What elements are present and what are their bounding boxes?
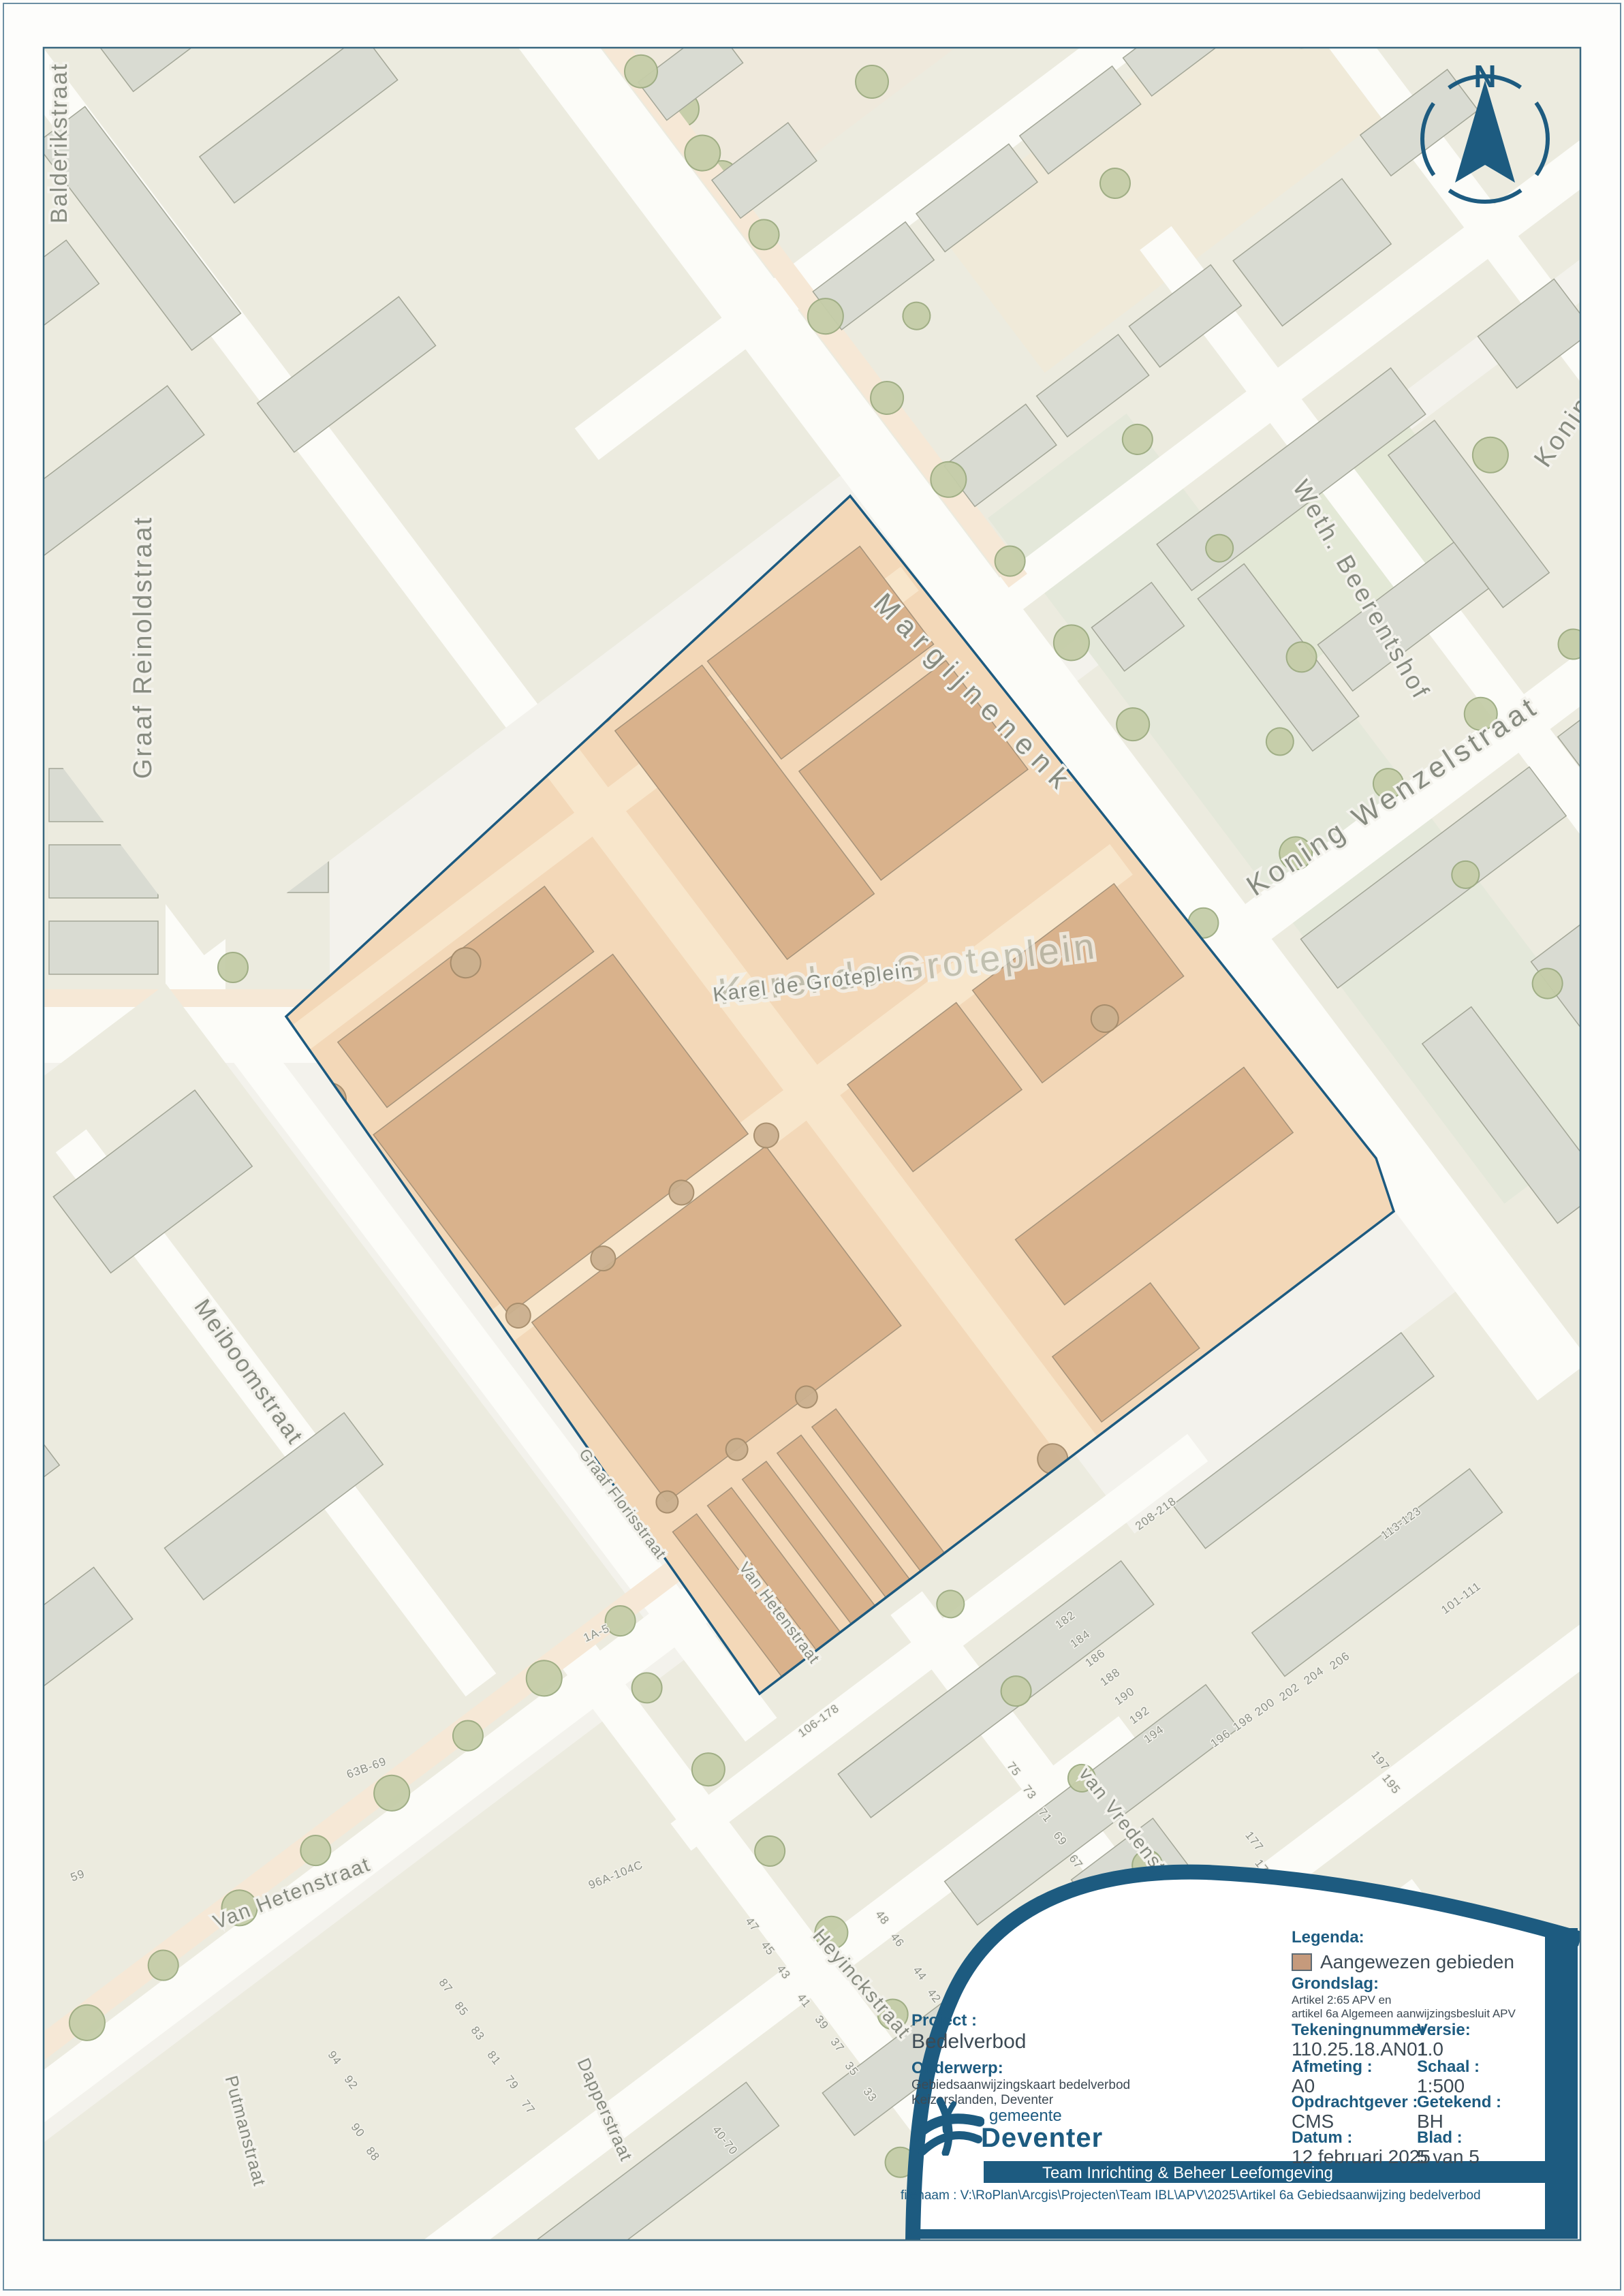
onderwerp-label: Onderwerp: bbox=[911, 2059, 1130, 2078]
info-r2-l2: Getekend : bbox=[1417, 2093, 1501, 2112]
legend-label: Aangewezen gebieden bbox=[1320, 1951, 1514, 1973]
project-block: Project : Bedelverbod bbox=[911, 2011, 1026, 2053]
project-value: Bedelverbod bbox=[911, 2030, 1026, 2053]
grondslag-line1: Artikel 2:65 APV en bbox=[1292, 1994, 1516, 2007]
info-r0-l2: Versie: bbox=[1417, 2021, 1471, 2040]
logo-line2: Deventer bbox=[981, 2123, 1103, 2154]
team-bar-label: Team Inrichting & Beheer Leefomgeving bbox=[1042, 2164, 1333, 2183]
project-label: Project : bbox=[911, 2011, 1026, 2030]
info-r1-l2: Schaal : bbox=[1417, 2058, 1480, 2077]
info-r3-l2: Blad : bbox=[1417, 2128, 1463, 2147]
info-r1-l1: Afmeting : bbox=[1292, 2058, 1373, 2077]
grondslag-line2: artikel 6a Algemeen aanwijzingsbesluit A… bbox=[1292, 2007, 1516, 2021]
legend: Legenda: Aangewezen gebieden bbox=[1292, 1928, 1514, 1973]
info-r3-v2: 5 van 5 bbox=[1417, 2146, 1480, 2168]
info-r0-l1: Tekeningnummer : bbox=[1292, 2021, 1437, 2040]
filename-line: filenaam : V:\RoPlan\Arcgis\Projecten\Te… bbox=[901, 2188, 1481, 2203]
grondslag: Grondslag: Artikel 2:65 APV en artikel 6… bbox=[1292, 1974, 1516, 2021]
deventer-logo-icon bbox=[913, 2097, 984, 2156]
street-label-balderikstraat: Balderikstraat bbox=[46, 63, 72, 223]
info-r3-l1: Datum : bbox=[1292, 2128, 1352, 2147]
map-sheet: Balderikstraat Graaf Reinoldstraat Margi… bbox=[0, 0, 1624, 2296]
legend-heading: Legenda: bbox=[1292, 1928, 1514, 1947]
legend-swatch bbox=[1292, 1953, 1312, 1971]
info-r2-l1: Opdrachtgever : bbox=[1292, 2093, 1418, 2112]
north-label: N bbox=[1473, 59, 1496, 94]
onderwerp-line1: Gebiedsaanwijzingskaart bedelverbod bbox=[911, 2078, 1130, 2093]
grondslag-heading: Grondslag: bbox=[1292, 1974, 1516, 1994]
street-label-graaf-reinoldstraat: Graaf Reinoldstraat bbox=[129, 516, 157, 779]
